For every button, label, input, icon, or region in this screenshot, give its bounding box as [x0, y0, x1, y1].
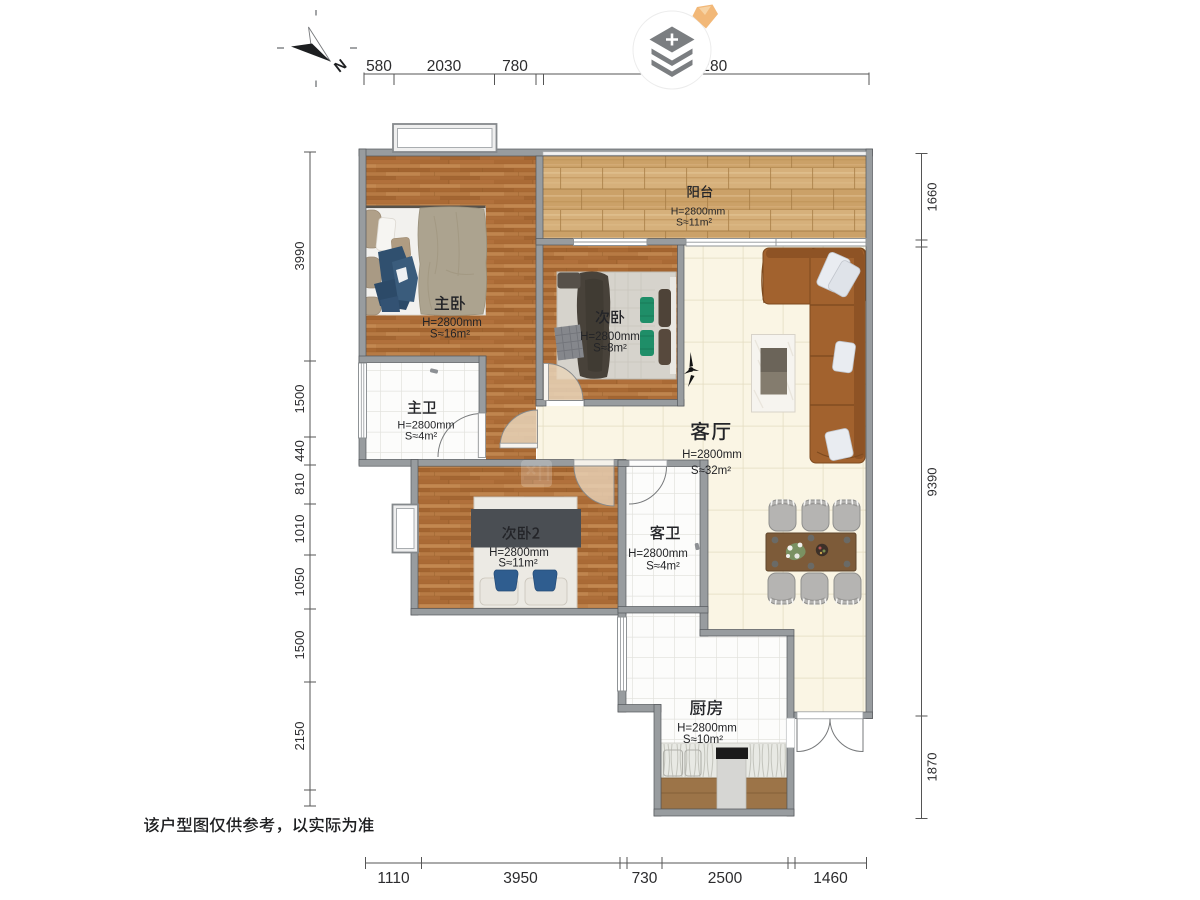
svg-text:1870: 1870 [925, 753, 940, 782]
svg-text:1110: 1110 [377, 870, 410, 887]
svg-text:780: 780 [502, 58, 528, 75]
svg-text:2500: 2500 [708, 870, 743, 887]
svg-text:3990: 3990 [292, 242, 307, 271]
svg-text:S≈10m²: S≈10m² [683, 734, 723, 746]
svg-text:2030: 2030 [427, 58, 462, 75]
svg-text:H=2800mm: H=2800mm [677, 723, 737, 735]
svg-text:S≈11m²: S≈11m² [676, 217, 712, 229]
svg-text:S≈11m²: S≈11m² [498, 558, 537, 570]
svg-text:S≈8m²: S≈8m² [593, 343, 627, 355]
svg-text:S≈4m²: S≈4m² [405, 431, 438, 443]
svg-text:H=2800mm: H=2800mm [580, 331, 640, 343]
svg-text:810: 810 [292, 473, 307, 495]
svg-text:S≈16m²: S≈16m² [430, 329, 470, 341]
svg-text:1660: 1660 [925, 183, 940, 212]
svg-text:S≈4m²: S≈4m² [646, 561, 680, 573]
svg-text:2150: 2150 [292, 722, 307, 751]
svg-text:S≈32m²: S≈32m² [691, 465, 731, 477]
svg-text:9390: 9390 [925, 468, 940, 497]
svg-text:1500: 1500 [292, 631, 307, 660]
svg-text:1460: 1460 [813, 870, 848, 887]
svg-text:1500: 1500 [292, 385, 307, 414]
svg-text:1050: 1050 [292, 568, 307, 597]
svg-text:H=2800mm: H=2800mm [422, 317, 482, 329]
svg-text:3950: 3950 [503, 870, 538, 887]
svg-text:580: 580 [366, 58, 392, 75]
svg-text:H=2800mm: H=2800mm [628, 548, 688, 560]
svg-text:440: 440 [292, 440, 307, 462]
svg-text:1010: 1010 [292, 515, 307, 544]
svg-text:H=2800mm: H=2800mm [682, 449, 742, 461]
svg-text:730: 730 [632, 870, 658, 887]
